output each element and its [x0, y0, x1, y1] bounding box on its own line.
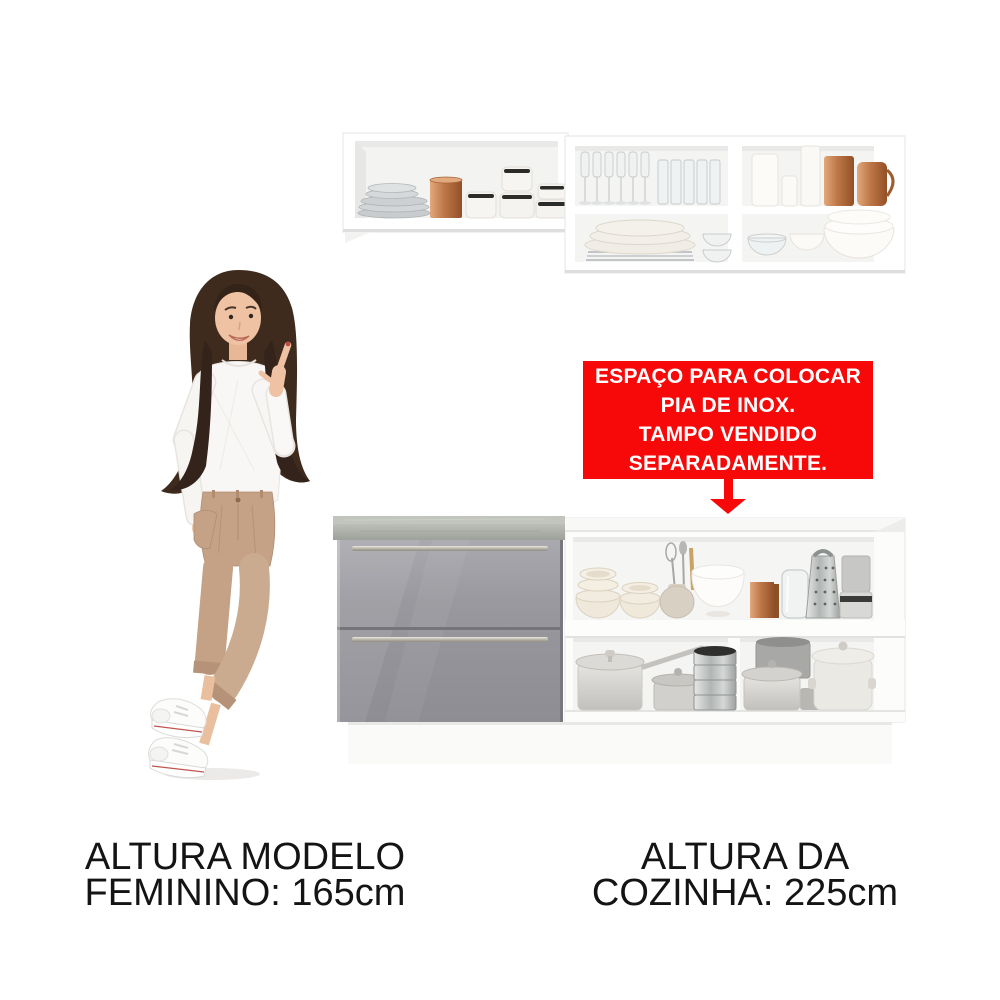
down-arrow-icon — [724, 477, 733, 500]
countertop — [333, 516, 565, 540]
glassware-tumblers — [658, 160, 720, 204]
sneakers — [149, 676, 216, 778]
drawer-unit — [337, 540, 563, 722]
wall-cabinet-left — [343, 133, 568, 243]
painted-nail — [286, 342, 291, 347]
copper-canister — [430, 177, 462, 218]
label-model-height: ALTURA MODELO FEMININO: 165cm — [55, 839, 435, 911]
label-model-height-line2: FEMININO: 165cm — [55, 875, 435, 911]
storage-jars — [840, 556, 872, 618]
annotation-line-2: PIA DE INOX. — [661, 391, 796, 420]
annotation-line-1: ESPAÇO PARA COLOCAR — [595, 362, 861, 391]
base-cabinet — [333, 516, 905, 764]
drawer-handle-bottom — [352, 637, 548, 642]
model-photo — [149, 270, 310, 780]
springform-stack — [694, 646, 736, 710]
label-kitchen-height-line2: COZINHA: 225cm — [555, 875, 935, 911]
label-kitchen-height-line1: ALTURA DA — [555, 839, 935, 875]
annotation-line-4: SEPARADAMENTE. — [629, 449, 827, 478]
label-model-height-line1: ALTURA MODELO — [55, 839, 435, 875]
copper-box — [750, 582, 774, 618]
plinth — [348, 722, 892, 764]
label-kitchen-height: ALTURA DA COZINHA: 225cm — [555, 839, 935, 911]
drawer-handle-top — [352, 546, 548, 551]
annotation-line-3: TAMPO VENDIDO — [639, 420, 817, 449]
grater — [806, 551, 840, 618]
down-arrow-head-icon — [710, 499, 746, 514]
product-image: ESPAÇO PARA COLOCAR PIA DE INOX. TAMPO V… — [0, 0, 1000, 1000]
wall-cabinet-right — [565, 136, 905, 273]
pants — [194, 490, 275, 700]
sink-annotation-box: ESPAÇO PARA COLOCAR PIA DE INOX. TAMPO V… — [583, 361, 873, 479]
sink-space — [565, 518, 905, 532]
